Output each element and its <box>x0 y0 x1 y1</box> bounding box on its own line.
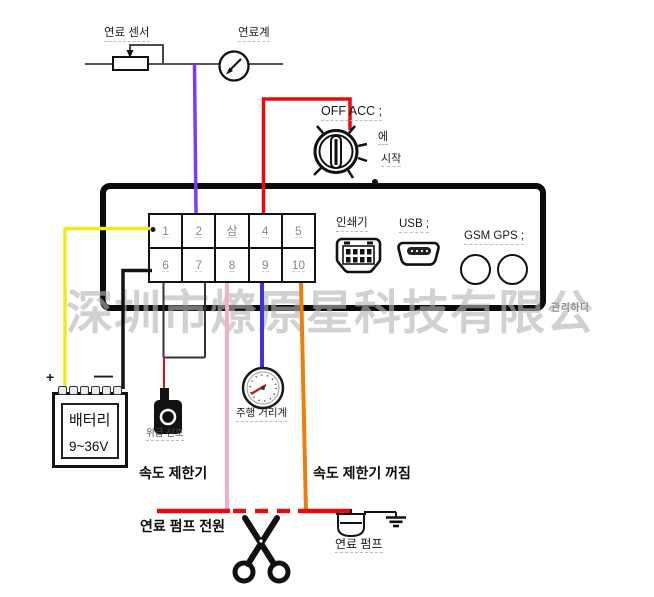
fuel-pump-label: 연료 펌프 <box>335 538 383 553</box>
wiring-diagram: 1 2 삼 4 5 6 7 8 9 10 深圳市燎原星科技有限公 <box>0 0 654 597</box>
speed-limiter-label: 속도 제한기 <box>139 466 207 481</box>
ignition-start-label: 시작 <box>381 153 401 167</box>
scissors-icon <box>235 518 288 581</box>
battery-terminal-bump <box>69 386 78 395</box>
battery-label-panel: 배터리 9~36V <box>61 403 119 459</box>
battery-terminal-bump <box>58 386 67 395</box>
emergency-plug-neck <box>160 388 169 402</box>
fuel-pump-icon <box>336 509 396 536</box>
ignition-position-label: OFF ACC ; <box>321 105 382 121</box>
orange-speed-limiter-off-wire <box>301 283 306 512</box>
printer-port-icon <box>337 239 380 272</box>
battery-plus-symbol: + <box>46 369 54 385</box>
fuel-gauge-label: 연료계 <box>238 27 270 42</box>
black-battery-minus-wire <box>123 271 152 390</box>
battery: 배터리 9~36V <box>52 392 128 468</box>
odometer-label: 주행 거리계 <box>236 408 287 422</box>
purple-wire <box>195 64 197 213</box>
usb-port-icon <box>398 243 438 265</box>
battery-terminal-bump <box>80 386 89 395</box>
odometer-hub <box>261 386 265 390</box>
ground-icon <box>386 518 406 527</box>
battery-voltage: 9~36V <box>69 439 117 454</box>
battery-minus-symbol: — <box>94 366 112 388</box>
emergency-signal-wires <box>164 283 206 358</box>
ignition-on-label: 에 <box>378 131 388 145</box>
fuel-pump-power-label: 연료 펌프 전원 <box>140 519 225 534</box>
terminal1-junction-dot <box>151 227 156 232</box>
emergency-signal-label: 위급 신호 <box>146 429 184 441</box>
fuel-sensor-potentiometer <box>113 57 148 70</box>
chassis-junction-dot <box>372 179 378 185</box>
speed-limiter-off-label: 속도 제한기 꺼짐 <box>313 466 411 481</box>
manage-label: 관리하다 <box>551 299 590 314</box>
fuel-sensor-label: 연료 센서 <box>104 27 150 42</box>
battery-name: 배터리 <box>69 409 117 430</box>
battery-terminal-bump <box>113 386 122 395</box>
